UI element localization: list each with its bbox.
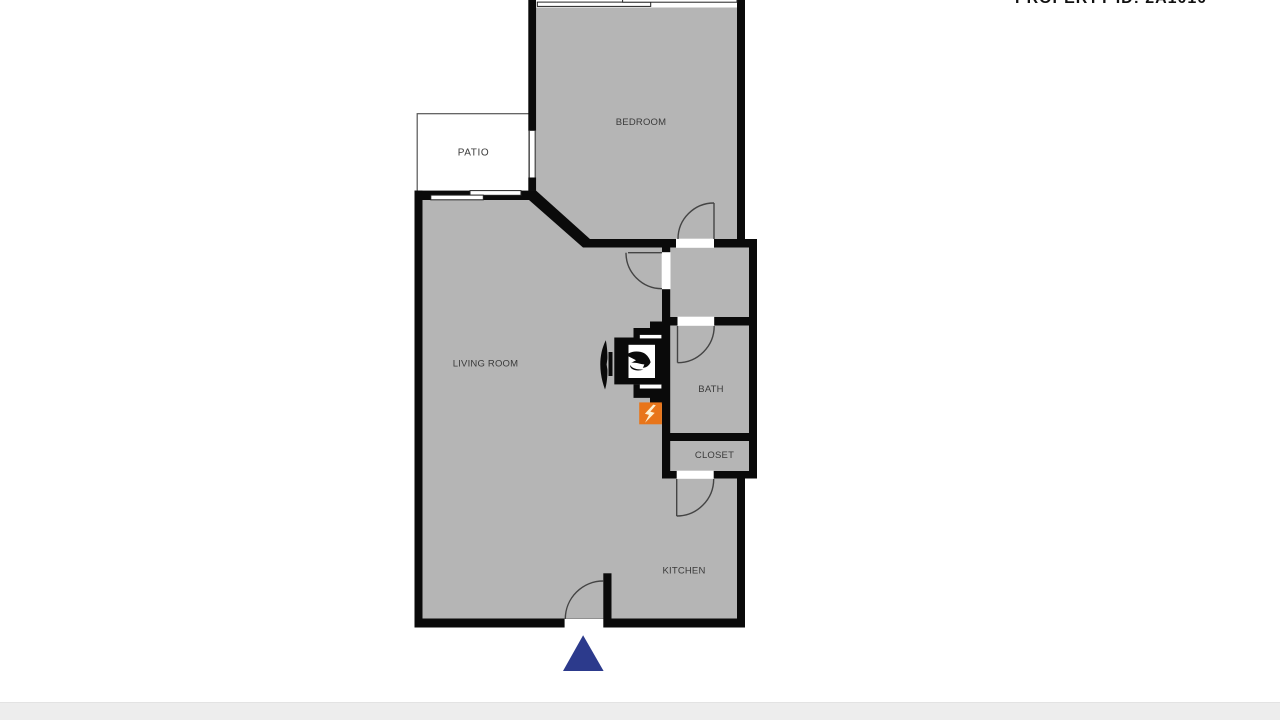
svg-text:CLOSET: CLOSET <box>695 450 734 461</box>
svg-text:LIVING ROOM: LIVING ROOM <box>453 359 519 370</box>
svg-text:BATH: BATH <box>698 384 723 395</box>
svg-text:BEDROOM: BEDROOM <box>616 117 667 128</box>
svg-text:KITCHEN: KITCHEN <box>662 566 705 577</box>
svg-text:PATIO: PATIO <box>458 147 490 158</box>
